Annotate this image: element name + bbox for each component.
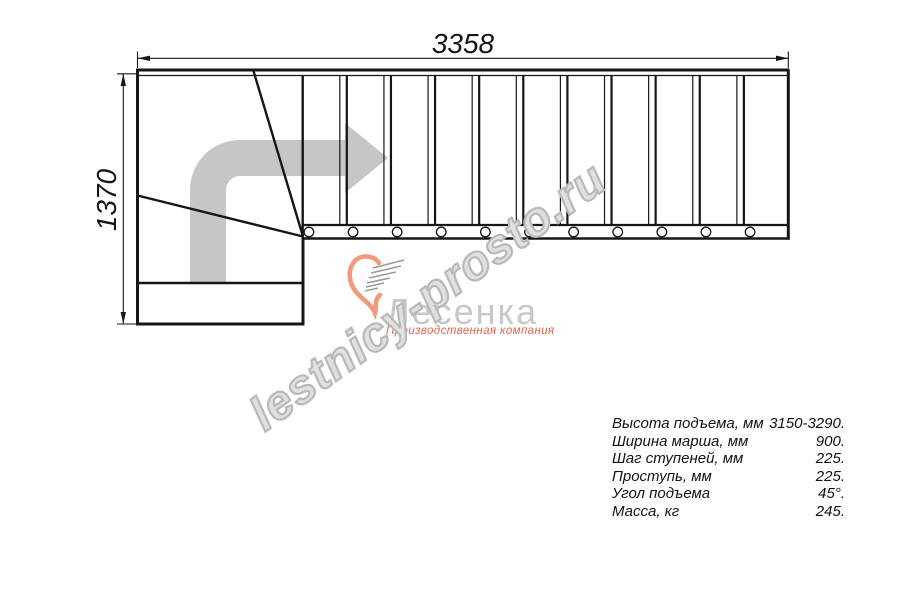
support-bolt-circle <box>745 227 755 237</box>
width-dimension: 3358 <box>138 28 789 68</box>
support-bolt-circle <box>304 227 314 237</box>
width-dimension-value: 3358 <box>432 28 495 59</box>
spec-row-tread: Проступь, мм 225. <box>612 468 845 486</box>
spec-row-mass: Масса, кг 245. <box>612 503 845 521</box>
spec-value: 3150-3290. <box>769 415 845 433</box>
width-arrowhead-right <box>776 56 788 61</box>
spec-row-width: Ширина марша, мм 900. <box>612 433 845 451</box>
width-arrowhead-left <box>138 56 151 61</box>
stair-plan-drawing: 3358 1370 Лесенка Производственная компа… <box>0 0 900 600</box>
spec-value: 45°. <box>818 485 845 503</box>
depth-dimension: 1370 <box>91 74 136 324</box>
spec-label: Ширина марша, мм <box>612 433 748 451</box>
support-bolt-circle <box>657 227 667 237</box>
support-bolt-circle <box>613 227 623 237</box>
spec-row-step: Шаг ступеней, мм 225. <box>612 450 845 468</box>
support-bolt-circle <box>392 227 402 237</box>
spec-value: 245. <box>816 503 845 521</box>
spec-label: Проступь, мм <box>612 468 712 486</box>
support-bolt-circle <box>569 227 579 237</box>
support-bolt-circle <box>436 227 446 237</box>
spec-value: 900. <box>816 433 845 451</box>
spec-label: Шаг ступеней, мм <box>612 450 743 468</box>
spec-value: 225. <box>816 468 845 486</box>
depth-arrowhead-top <box>121 74 126 86</box>
depth-arrowhead-bottom <box>121 312 126 324</box>
spec-row-angle: Угол подъема 45°. <box>612 485 845 503</box>
spec-value: 225. <box>816 450 845 468</box>
support-bolt-circle <box>701 227 711 237</box>
spec-label: Масса, кг <box>612 503 679 521</box>
spec-table: Высота подъема, мм 3150-3290. Ширина мар… <box>612 415 845 521</box>
spec-label: Высота подъема, мм <box>612 415 764 433</box>
spec-label: Угол подъема <box>612 485 710 503</box>
depth-dimension-value: 1370 <box>91 168 122 231</box>
spec-row-height: Высота подъема, мм 3150-3290. <box>612 415 845 433</box>
support-bolt-circle <box>348 227 358 237</box>
